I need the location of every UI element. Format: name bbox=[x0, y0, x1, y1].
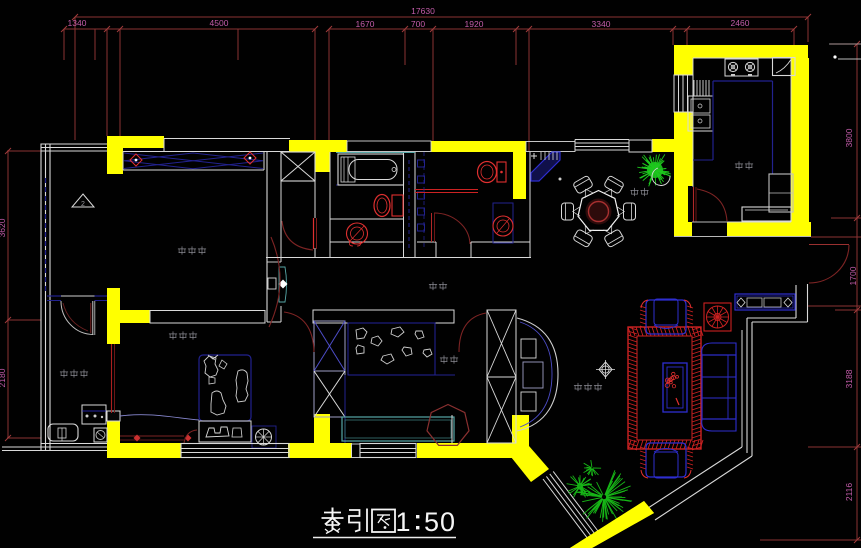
svg-text:17630: 17630 bbox=[411, 6, 435, 16]
svg-text:1670: 1670 bbox=[356, 19, 375, 29]
svg-text:1920: 1920 bbox=[465, 19, 484, 29]
svg-text:3800: 3800 bbox=[844, 128, 854, 147]
svg-text:3340: 3340 bbox=[592, 19, 611, 29]
svg-text:2460: 2460 bbox=[731, 18, 750, 28]
svg-text:1340: 1340 bbox=[68, 18, 87, 28]
svg-text:3188: 3188 bbox=[844, 369, 854, 388]
svg-text:1: 1 bbox=[395, 507, 410, 537]
svg-text:4500: 4500 bbox=[210, 18, 229, 28]
svg-text:1700: 1700 bbox=[848, 266, 858, 285]
svg-text:2116: 2116 bbox=[844, 483, 854, 502]
svg-text:50: 50 bbox=[424, 507, 456, 537]
svg-text:3620: 3620 bbox=[0, 218, 7, 237]
svg-text:2: 2 bbox=[81, 201, 85, 208]
svg-text:2180: 2180 bbox=[0, 368, 7, 387]
svg-text:700: 700 bbox=[411, 19, 425, 29]
